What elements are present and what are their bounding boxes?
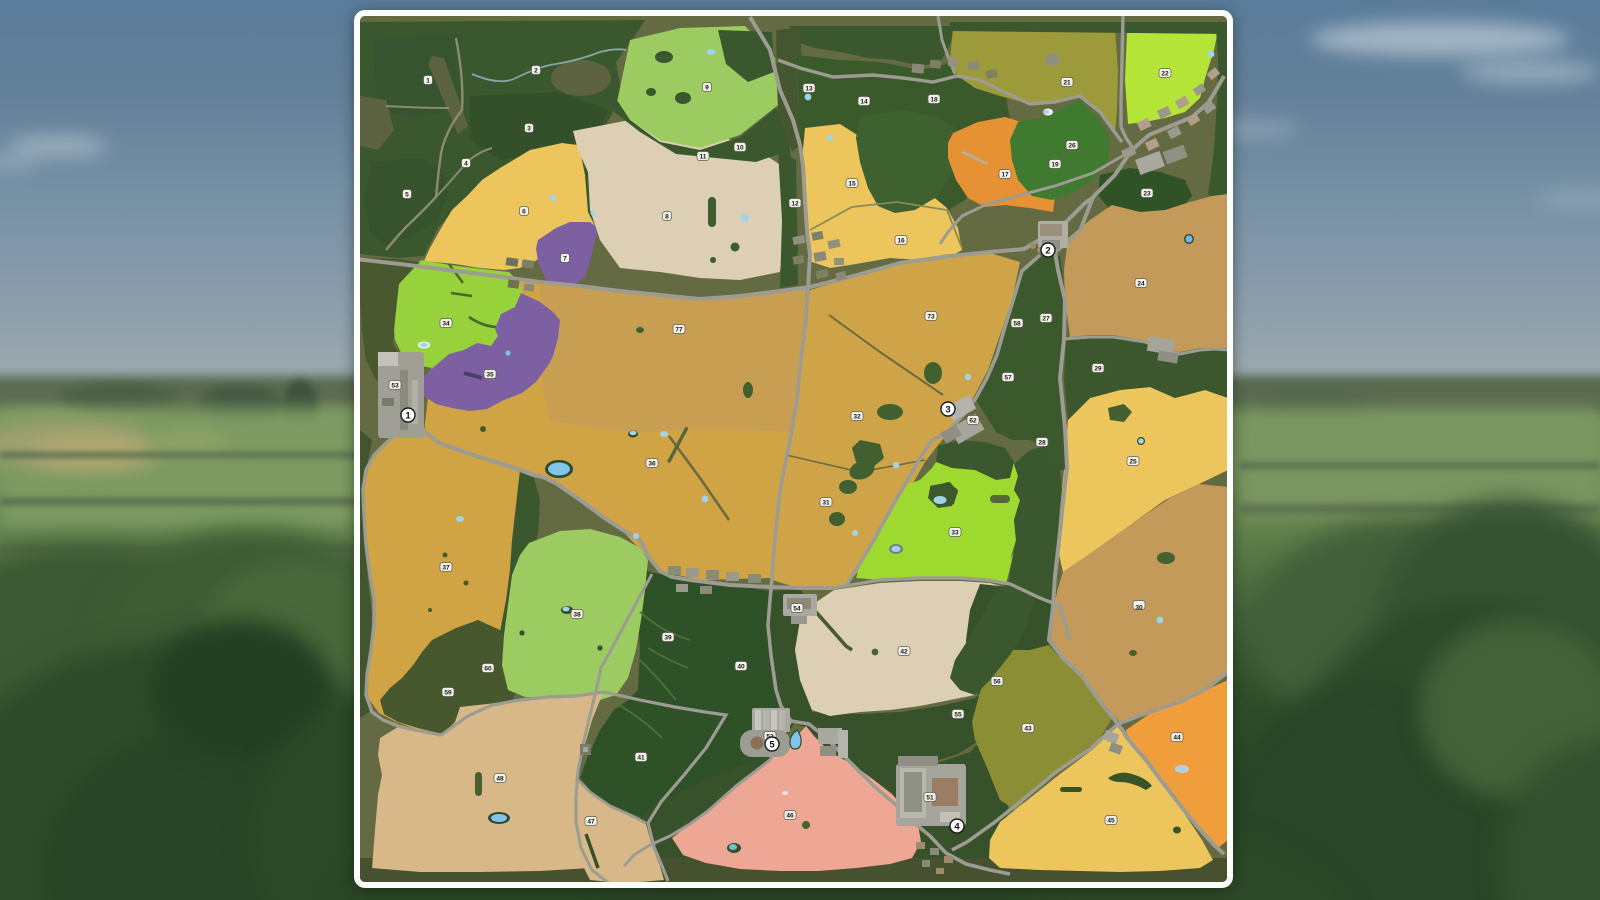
svg-text:9: 9 (705, 84, 709, 91)
svg-text:41: 41 (637, 754, 645, 761)
svg-text:38: 38 (573, 611, 581, 618)
svg-text:25: 25 (1129, 458, 1137, 465)
svg-text:3: 3 (945, 404, 950, 415)
svg-text:55: 55 (954, 711, 962, 718)
svg-text:42: 42 (900, 648, 908, 655)
svg-text:36: 36 (648, 460, 656, 467)
svg-text:11: 11 (700, 153, 707, 160)
svg-text:3: 3 (527, 125, 531, 132)
svg-text:12: 12 (791, 200, 799, 207)
svg-text:8: 8 (665, 213, 669, 220)
svg-text:23: 23 (1143, 190, 1151, 197)
svg-text:53: 53 (391, 382, 399, 389)
svg-text:51: 51 (926, 794, 934, 801)
svg-text:24: 24 (1137, 280, 1145, 287)
svg-text:27: 27 (1042, 315, 1050, 322)
svg-text:4: 4 (954, 821, 960, 832)
svg-text:28: 28 (1038, 439, 1046, 446)
svg-text:19: 19 (1051, 161, 1059, 168)
svg-text:46: 46 (786, 812, 794, 819)
svg-text:5: 5 (769, 739, 775, 750)
svg-text:48: 48 (496, 775, 504, 782)
svg-text:29: 29 (1094, 365, 1102, 372)
svg-text:39: 39 (664, 634, 672, 641)
svg-text:54: 54 (793, 605, 801, 612)
svg-text:21: 21 (1063, 79, 1071, 86)
svg-text:30: 30 (1135, 604, 1143, 611)
svg-text:34: 34 (442, 320, 450, 327)
svg-text:4: 4 (464, 160, 468, 167)
svg-text:57: 57 (1004, 374, 1012, 381)
svg-text:2: 2 (1045, 245, 1050, 256)
svg-text:32: 32 (853, 413, 861, 420)
svg-text:15: 15 (848, 180, 856, 187)
svg-text:18: 18 (930, 96, 938, 103)
svg-text:60: 60 (484, 665, 492, 672)
svg-text:73: 73 (927, 313, 935, 320)
svg-text:2: 2 (534, 67, 538, 74)
svg-text:5: 5 (405, 191, 409, 198)
svg-text:58: 58 (1013, 320, 1021, 327)
svg-text:14: 14 (860, 98, 868, 105)
svg-text:62: 62 (969, 417, 977, 424)
svg-text:35: 35 (486, 371, 494, 378)
svg-text:22: 22 (1161, 70, 1169, 77)
svg-text:17: 17 (1001, 171, 1009, 178)
svg-text:26: 26 (1068, 142, 1076, 149)
svg-text:37: 37 (442, 564, 450, 571)
svg-text:56: 56 (993, 678, 1001, 685)
svg-text:45: 45 (1107, 817, 1115, 824)
svg-text:31: 31 (822, 499, 830, 506)
svg-text:1: 1 (426, 77, 430, 84)
svg-text:7: 7 (563, 255, 567, 262)
svg-text:77: 77 (675, 326, 683, 333)
svg-text:43: 43 (1024, 725, 1032, 732)
svg-text:10: 10 (736, 144, 744, 151)
svg-text:59: 59 (444, 689, 452, 696)
svg-text:44: 44 (1173, 734, 1181, 741)
svg-text:6: 6 (522, 208, 526, 215)
svg-text:33: 33 (951, 529, 959, 536)
svg-text:40: 40 (737, 663, 745, 670)
svg-text:13: 13 (805, 85, 813, 92)
svg-text:16: 16 (897, 237, 905, 244)
svg-text:1: 1 (405, 410, 411, 421)
svg-text:47: 47 (587, 818, 595, 825)
